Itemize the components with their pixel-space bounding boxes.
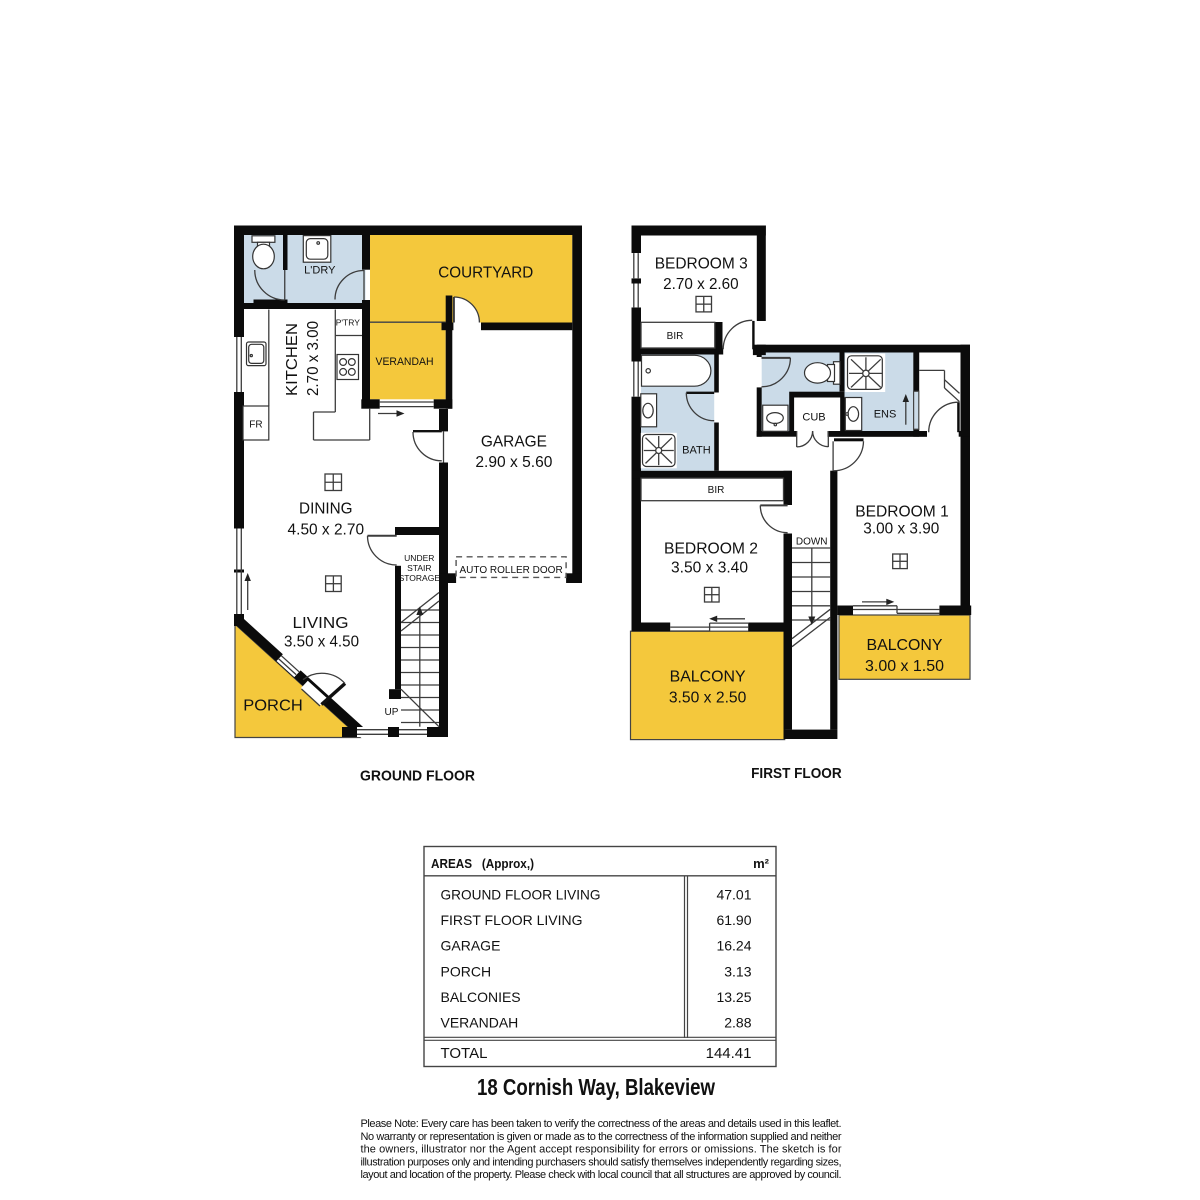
svg-text:COURTYARD: COURTYARD (438, 265, 533, 282)
svg-text:Please Note: Every care has b: Please Note: Every care has been taken t… (361, 1118, 842, 1130)
svg-text:STAIR: STAIR (407, 563, 431, 573)
svg-text:GARAGE: GARAGE (481, 433, 547, 450)
svg-text:L'DRY: L'DRY (304, 264, 336, 276)
svg-text:LIVING: LIVING (293, 615, 349, 632)
svg-text:61.90: 61.90 (716, 912, 751, 928)
svg-text:GROUND FLOOR: GROUND FLOOR (360, 768, 475, 785)
svg-text:DOWN: DOWN (796, 537, 828, 548)
svg-text:18 Cornish Way, Blakeview: 18 Cornish Way, Blakeview (477, 1074, 715, 1100)
svg-text:FR: FR (249, 420, 262, 431)
svg-text:3.13: 3.13 (724, 963, 751, 979)
svg-text:BEDROOM 1: BEDROOM 1 (855, 503, 949, 520)
svg-text:illustration purposes only and: illustration purposes only and intending… (361, 1156, 842, 1168)
svg-text:UNDER: UNDER (404, 553, 434, 563)
svg-text:3.00 x 1.50: 3.00 x 1.50 (865, 658, 944, 675)
svg-text:GARAGE: GARAGE (441, 938, 501, 954)
svg-text:UP: UP (385, 707, 399, 718)
svg-text:16.24: 16.24 (716, 938, 751, 954)
svg-text:STORAGE: STORAGE (399, 573, 441, 583)
svg-text:2.90 x 5.60: 2.90 x 5.60 (475, 454, 552, 471)
svg-text:2.70 x 2.60: 2.70 x 2.60 (663, 276, 739, 293)
svg-text:13.25: 13.25 (716, 989, 751, 1005)
svg-text:BATH: BATH (682, 444, 711, 456)
svg-text:GROUND FLOOR LIVING: GROUND FLOOR LIVING (441, 887, 601, 903)
svg-text:BALCONY: BALCONY (670, 669, 746, 686)
svg-text:4.50 x 2.70: 4.50 x 2.70 (288, 522, 365, 539)
svg-text:ENS: ENS (874, 409, 897, 421)
svg-text:VERANDAH: VERANDAH (376, 356, 434, 368)
svg-text:AREAS (Approx,): AREAS (Approx,) (431, 856, 534, 871)
svg-text:BEDROOM 2: BEDROOM 2 (664, 541, 758, 558)
svg-text:DINING: DINING (299, 500, 353, 517)
svg-text:144.41: 144.41 (706, 1045, 752, 1062)
svg-text:P'TRY: P'TRY (336, 318, 360, 328)
svg-text:KITCHEN: KITCHEN (284, 323, 301, 396)
svg-text:the owners, illustrator nor: the owners, illustrator nor the Agent ac… (361, 1144, 842, 1156)
svg-text:BEDROOM 3: BEDROOM 3 (655, 255, 748, 272)
svg-text:2.70 x 3.00: 2.70 x 3.00 (305, 321, 322, 396)
svg-text:PORCH: PORCH (441, 963, 492, 979)
svg-text:VERANDAH: VERANDAH (441, 1015, 519, 1031)
svg-text:layout and location of the pro: layout and location of the property. Ple… (361, 1169, 842, 1181)
svg-text:AUTO ROLLER DOOR: AUTO ROLLER DOOR (460, 565, 563, 576)
svg-text:3.00 x 3.90: 3.00 x 3.90 (863, 521, 939, 538)
svg-text:2.88: 2.88 (724, 1015, 751, 1031)
svg-text:CUB: CUB (802, 412, 825, 424)
svg-text:BIR: BIR (708, 485, 725, 496)
svg-text:PORCH: PORCH (243, 697, 303, 714)
svg-text:BALCONIES: BALCONIES (441, 989, 521, 1005)
svg-text:No warranty or representation: No warranty or representation is given o… (361, 1131, 842, 1143)
svg-text:3.50 x 3.40: 3.50 x 3.40 (671, 560, 748, 577)
svg-text:FIRST FLOOR: FIRST FLOOR (751, 765, 842, 782)
svg-text:BALCONY: BALCONY (867, 637, 943, 654)
svg-text:TOTAL: TOTAL (441, 1045, 488, 1062)
svg-text:47.01: 47.01 (716, 887, 751, 903)
svg-text:3.50 x 2.50: 3.50 x 2.50 (669, 690, 747, 707)
svg-text:FIRST FLOOR LIVING: FIRST FLOOR LIVING (441, 912, 583, 928)
svg-text:m²: m² (753, 856, 770, 871)
svg-text:BIR: BIR (667, 331, 684, 342)
svg-text:3.50 x 4.50: 3.50 x 4.50 (284, 634, 359, 651)
